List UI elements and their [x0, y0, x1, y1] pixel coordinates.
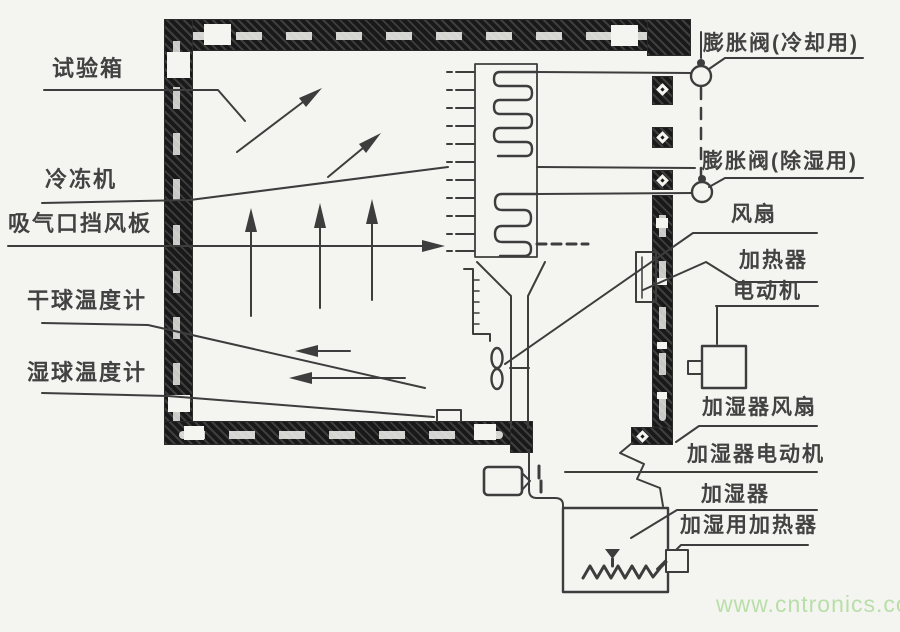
- label-suction-baffle: 吸气口挡风板: [8, 212, 152, 236]
- label-humidifier-motor: 加湿器电动机: [687, 443, 825, 466]
- label-humidifier-fan: 加湿器风扇: [702, 396, 817, 419]
- label-fan: 风扇: [731, 203, 777, 226]
- label-motor: 电动机: [733, 280, 802, 303]
- air-duct-and-fan: [477, 262, 545, 428]
- evaporator-coil: [475, 64, 588, 257]
- humidifier-heating-element: [583, 562, 666, 578]
- motor-box: [688, 346, 746, 388]
- water-drip-symbol: [605, 549, 620, 566]
- leader-test-chamber: [44, 90, 245, 121]
- label-heater: 加热器: [739, 249, 808, 272]
- label-refrigerator: 冷冻机: [45, 168, 117, 192]
- leader-humidifier-fan: [676, 426, 817, 442]
- label-expansion-valve-dehumidify: 膨胀阀(除湿用): [702, 150, 858, 173]
- humidifier-piping: [522, 450, 563, 508]
- dry-bulb-sensor: [464, 269, 490, 341]
- label-wet-bulb-thermometer: 湿球温度计: [27, 361, 147, 385]
- label-dry-bulb-thermometer: 干球温度计: [27, 289, 147, 313]
- diagram-canvas: 试验箱 冷冻机 吸气口挡风板 干球温度计 湿球温度计 膨胀阀(冷却用) 膨胀阀(…: [0, 0, 900, 632]
- watermark-text: www.cntronics.com: [716, 591, 900, 618]
- label-expansion-valve-cooling: 膨胀阀(冷却用): [703, 32, 859, 55]
- leader-expansion-valve-cooling: [709, 58, 863, 69]
- leader-motor: [716, 306, 818, 344]
- leader-wet-bulb: [42, 393, 434, 417]
- label-test-chamber: 试验箱: [52, 57, 124, 81]
- coil-fins: [447, 72, 474, 251]
- label-humidifier-heater: 加湿用加热器: [680, 514, 818, 537]
- refrigerant-pipes: [537, 72, 701, 194]
- label-humidifier: 加湿器: [701, 483, 770, 506]
- wet-bulb-sensor: [437, 410, 461, 421]
- diagram-linework: [0, 0, 900, 632]
- humidifier-motor-box: [484, 467, 522, 495]
- humidifier-drive-link: [620, 443, 663, 506]
- heater-box: [636, 252, 656, 302]
- leader-expansion-valve-dehumidify: [709, 178, 863, 187]
- expansion-valve-dehumidify-symbol: [692, 175, 712, 202]
